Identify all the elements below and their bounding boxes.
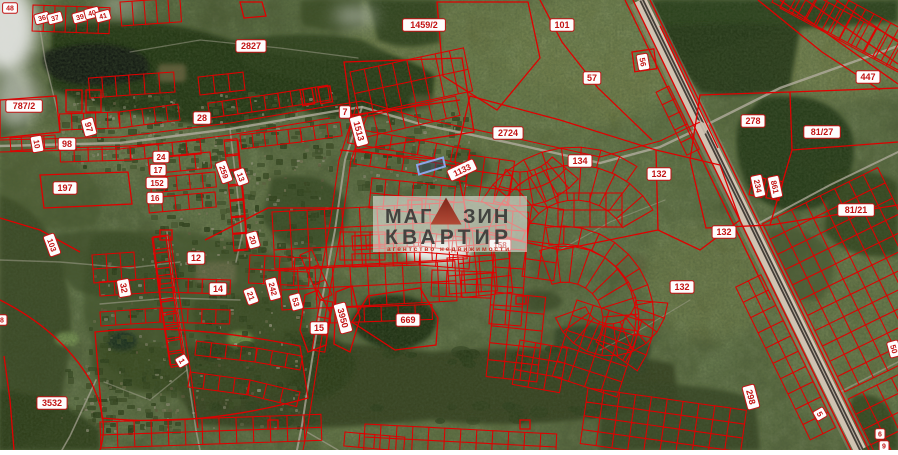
svg-text:32: 32 — [118, 282, 130, 294]
svg-text:7: 7 — [342, 107, 347, 117]
svg-text:15: 15 — [314, 323, 324, 333]
svg-text:787/2: 787/2 — [13, 101, 36, 111]
svg-text:1459/2: 1459/2 — [410, 20, 438, 30]
svg-text:16: 16 — [151, 194, 160, 203]
svg-text:48: 48 — [6, 6, 14, 13]
svg-text:152: 152 — [150, 179, 164, 188]
svg-text:81/21: 81/21 — [845, 205, 868, 215]
svg-text:447: 447 — [860, 72, 875, 82]
svg-text:669: 669 — [400, 315, 415, 325]
svg-text:132: 132 — [716, 227, 731, 237]
svg-text:12: 12 — [191, 253, 201, 263]
svg-text:ЗИН: ЗИН — [463, 206, 510, 228]
svg-text:24: 24 — [157, 153, 166, 162]
svg-text:8: 8 — [0, 318, 4, 325]
svg-text:9: 9 — [882, 444, 886, 451]
svg-text:197: 197 — [57, 183, 72, 193]
svg-text:134: 134 — [572, 156, 587, 166]
svg-text:101: 101 — [554, 20, 569, 30]
svg-text:278: 278 — [745, 116, 760, 126]
svg-text:14: 14 — [213, 284, 223, 294]
svg-text:агентство недвижимости: агентство недвижимости — [387, 246, 511, 253]
svg-text:2827: 2827 — [241, 41, 261, 51]
svg-text:6: 6 — [878, 432, 882, 439]
svg-text:57: 57 — [587, 73, 597, 83]
svg-text:28: 28 — [197, 113, 207, 123]
svg-text:98: 98 — [62, 139, 72, 149]
svg-text:132: 132 — [674, 282, 689, 292]
svg-text:3532: 3532 — [42, 398, 62, 408]
svg-text:МАГ: МАГ — [385, 206, 433, 228]
svg-text:17: 17 — [154, 166, 163, 175]
svg-text:132: 132 — [651, 169, 666, 179]
svg-text:2724: 2724 — [498, 128, 518, 138]
svg-text:81/27: 81/27 — [811, 127, 834, 137]
